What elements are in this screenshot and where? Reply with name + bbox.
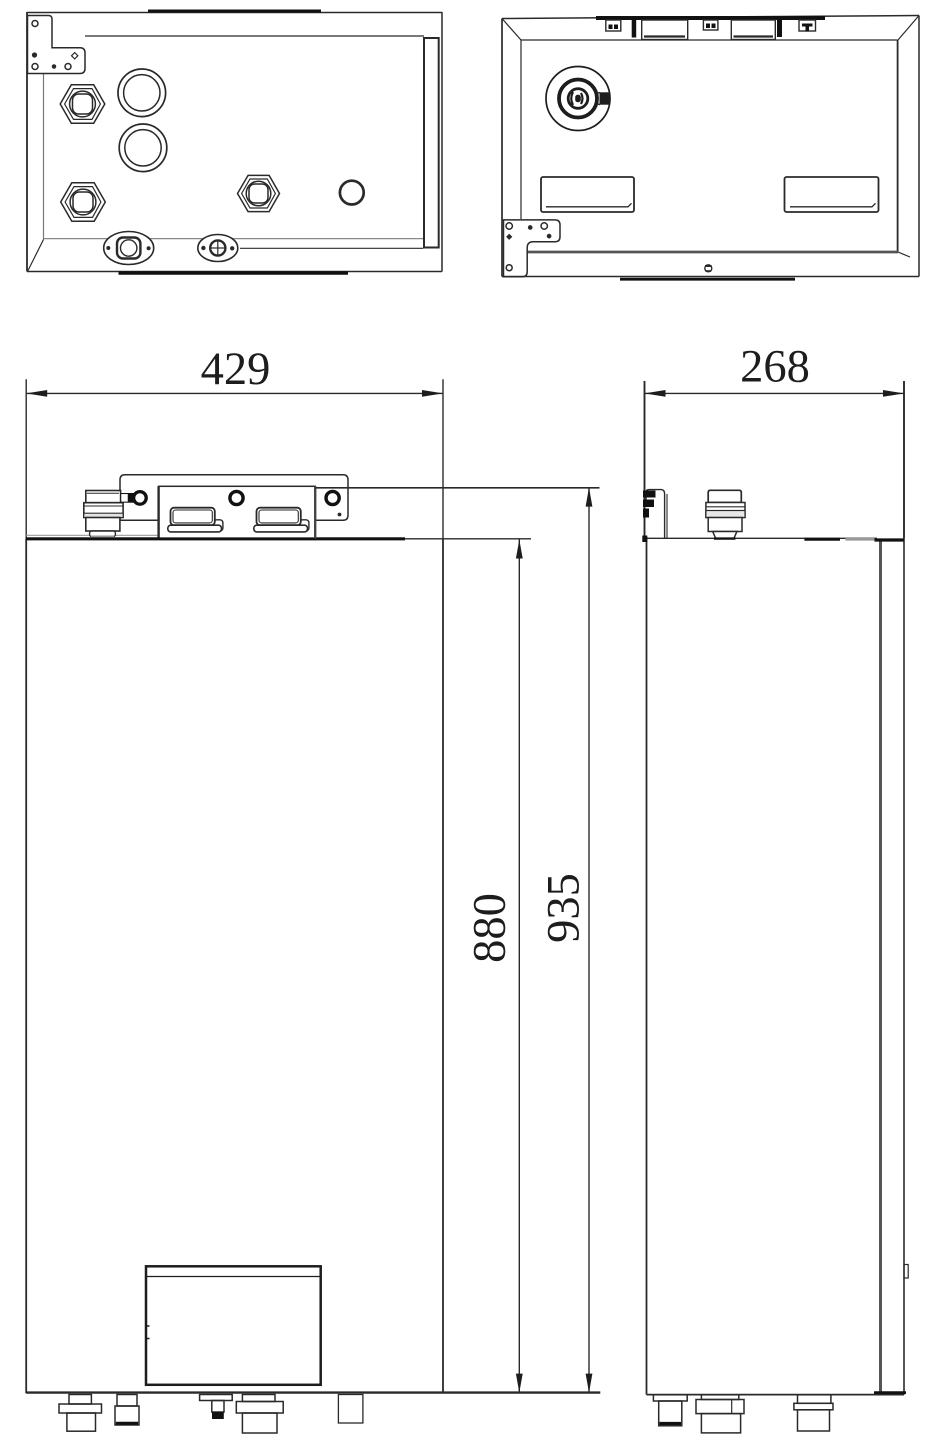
- svg-text:429: 429: [201, 344, 271, 395]
- svg-text:268: 268: [740, 342, 810, 393]
- svg-text:935: 935: [539, 873, 590, 943]
- svg-text:880: 880: [465, 893, 516, 963]
